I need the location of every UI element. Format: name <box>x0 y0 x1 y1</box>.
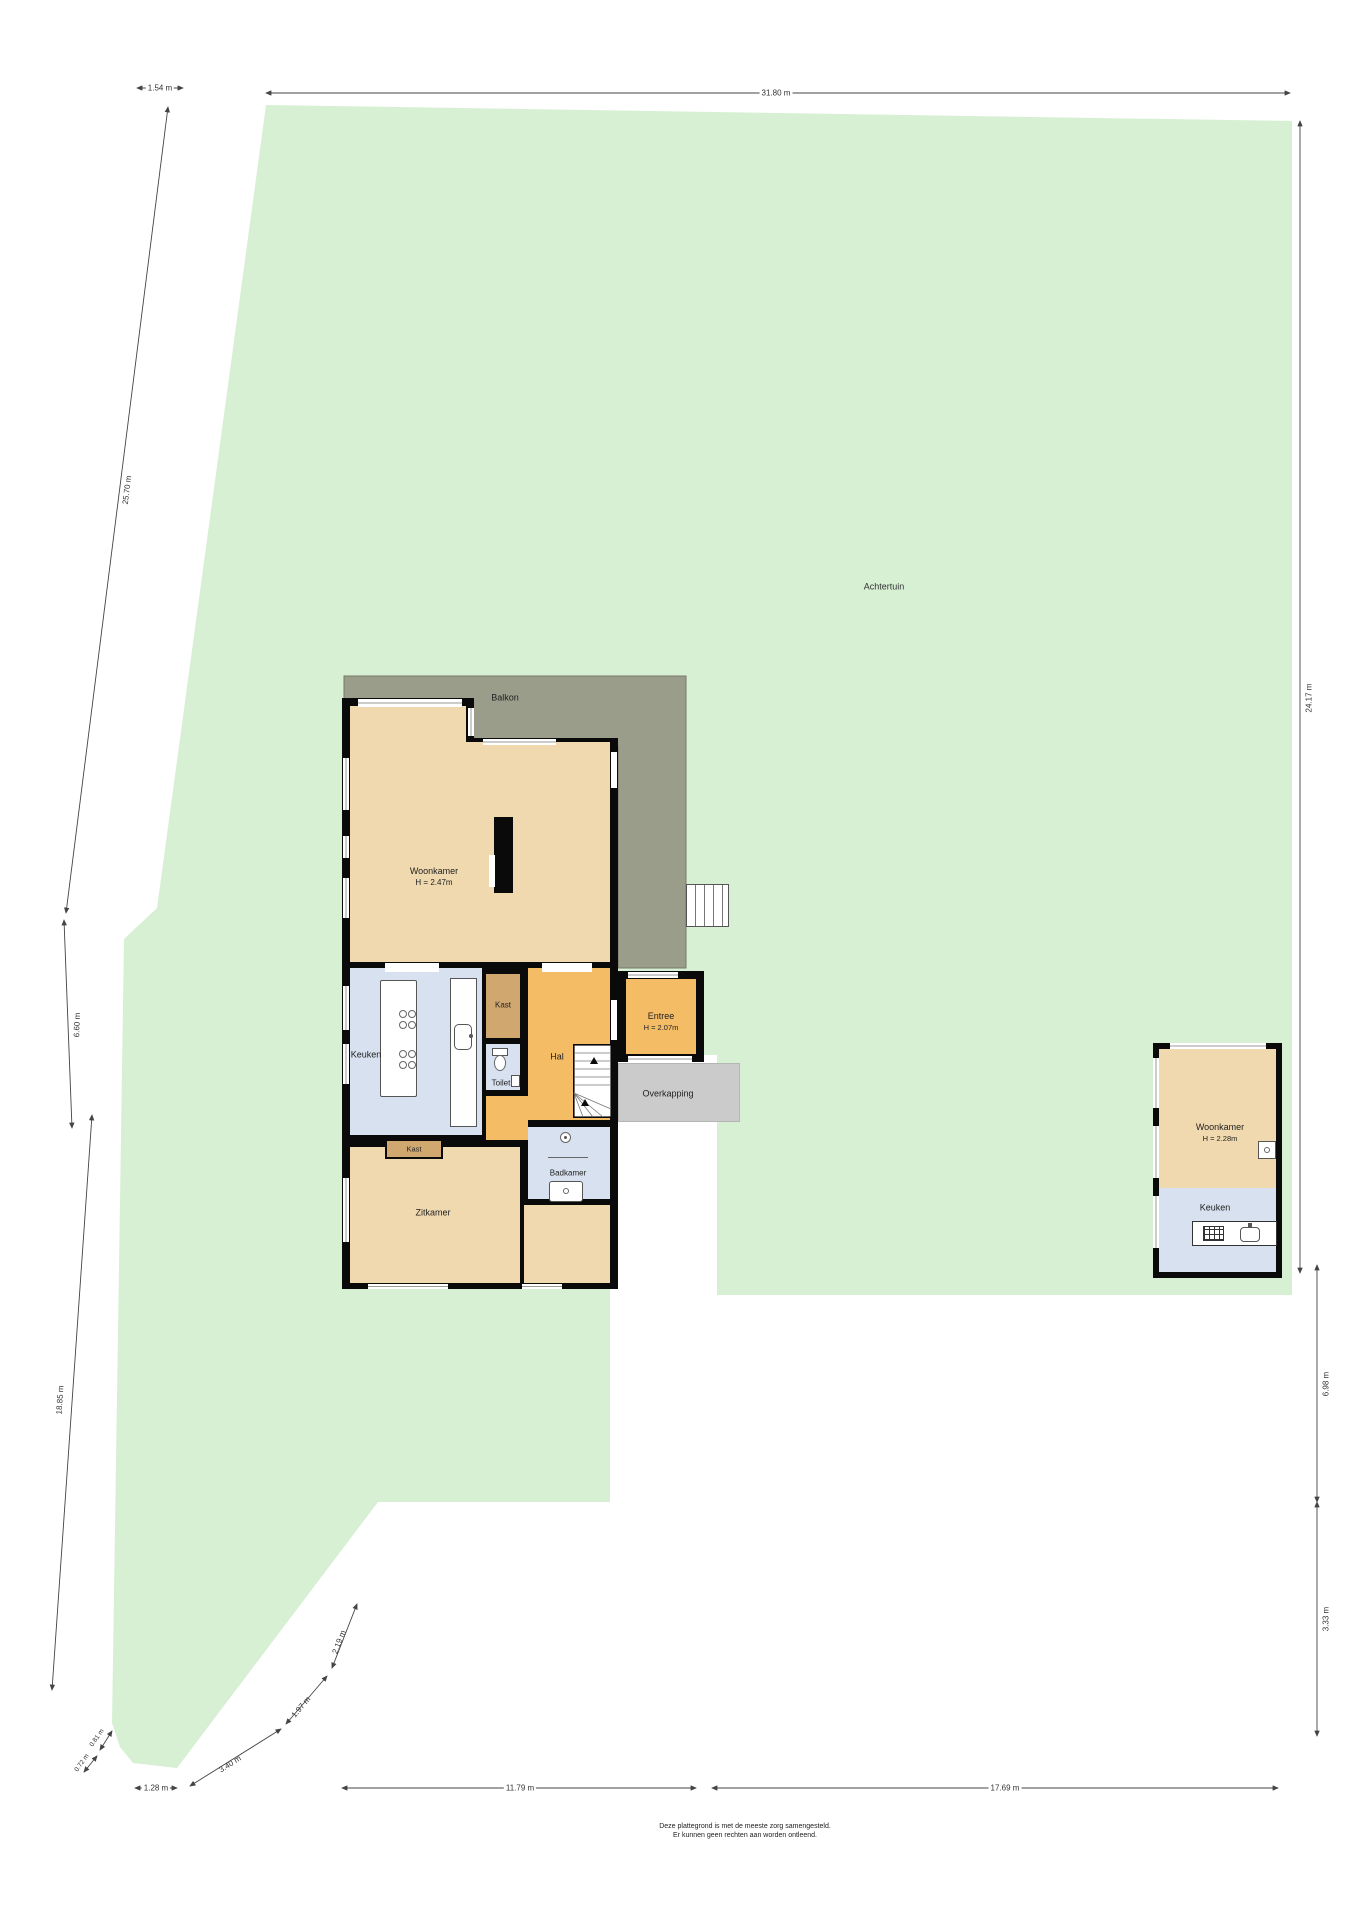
window-entree-bottom <box>628 1056 692 1062</box>
door-woonkamer-hal <box>542 963 592 972</box>
courtyard-area <box>610 1055 717 1502</box>
window-left-6 <box>343 1178 349 1242</box>
entree-height: H = 2.07m <box>644 1022 679 1033</box>
dim-right-lower: 3.33 m <box>1322 1605 1331 1633</box>
disclaimer-line-1: Deze plattegrond is met de meeste zorg s… <box>659 1822 831 1831</box>
bathtub-drain <box>563 1188 569 1194</box>
door-woonkamer-keuken <box>385 963 439 972</box>
window-left-4 <box>343 986 349 1030</box>
window-bottom-1 <box>368 1284 448 1289</box>
window-entree-top <box>628 972 678 978</box>
keuken-label: Keuken <box>351 1050 382 1061</box>
dim-bottom-left: 11.79 m <box>504 1784 536 1793</box>
entree-label: Entree H = 2.07m <box>644 1011 679 1033</box>
garden-lot-polygon <box>112 105 1292 1768</box>
badkamer-label: Badkamer <box>550 1168 586 1179</box>
room-woonkamer-upper <box>350 706 466 746</box>
hal-label: Hal <box>550 1052 564 1063</box>
window-guest-left-1 <box>1153 1058 1159 1108</box>
kast-upper-label: Kast <box>495 1000 511 1011</box>
door-hal-entree <box>611 1000 617 1040</box>
window-left-2 <box>343 836 349 858</box>
toilet-sink <box>511 1075 520 1087</box>
dim-corner-c: 1.28 m <box>142 1784 170 1793</box>
kitchen-counter <box>450 978 477 1127</box>
staircase <box>573 1044 612 1118</box>
room-hal-passage <box>486 1096 528 1140</box>
guest-woonkamer-label: Woonkamer H = 2.28m <box>1196 1122 1244 1144</box>
kitchen-tap <box>469 1034 473 1038</box>
guest-woonkamer-name: Woonkamer <box>1196 1122 1244 1133</box>
zitkamer-label: Zitkamer <box>415 1208 450 1219</box>
dim-right-upper: 24.17 m <box>1305 682 1314 715</box>
hob-burner-6 <box>408 1050 416 1058</box>
room-guest-woonkamer <box>1159 1049 1276 1188</box>
kast-lower-label: Kast <box>406 1144 421 1155</box>
site-plan-base <box>0 0 1358 1920</box>
dim-left-mid: 6.60 m <box>72 1011 82 1040</box>
window-woonkamer-step <box>468 708 474 736</box>
window-left-1 <box>343 758 349 810</box>
window-woonkamer-top <box>358 699 462 707</box>
guest-woonkamer-height: H = 2.28m <box>1196 1133 1244 1144</box>
kitchen-island <box>380 980 417 1097</box>
disclaimer: Deze plattegrond is met de meeste zorg s… <box>659 1822 831 1840</box>
garden-label: Achtertuin <box>864 582 905 593</box>
window-left-3 <box>343 878 349 918</box>
hob-burner-3 <box>399 1021 407 1029</box>
window-woonkamer-balcony <box>483 739 556 745</box>
shower-head-dot <box>564 1136 567 1139</box>
room-woonkamer <box>350 742 610 962</box>
toilet-label: Toilet <box>492 1078 511 1089</box>
boiler-dial <box>1264 1147 1270 1153</box>
guest-hob <box>1203 1226 1224 1241</box>
woonkamer-height: H = 2.47m <box>410 877 458 888</box>
balkon-label: Balkon <box>491 693 519 704</box>
window-guest-left-3 <box>1153 1196 1159 1248</box>
hob-burner-4 <box>408 1021 416 1029</box>
woonkamer-name: Woonkamer <box>410 866 458 877</box>
hob-burner-8 <box>408 1061 416 1069</box>
hob-burner-5 <box>399 1050 407 1058</box>
woonkamer-label: Woonkamer H = 2.47m <box>410 866 458 888</box>
guest-sink <box>1240 1227 1260 1242</box>
dim-right-mid: 6.98 m <box>1322 1370 1331 1398</box>
guest-tap <box>1248 1223 1252 1228</box>
hob-burner-7 <box>399 1061 407 1069</box>
dim-top-offset: 1.54 m <box>146 84 174 93</box>
fireplace <box>494 817 513 893</box>
floorplan-canvas: Achtertuin Balkon Woonkamer H = 2.47m Ke… <box>0 0 1358 1920</box>
entree-name: Entree <box>644 1011 679 1022</box>
overkapping-label: Overkapping <box>642 1089 693 1100</box>
window-guest-top <box>1170 1043 1266 1049</box>
dim-bottom-right: 17.69 m <box>989 1784 1022 1793</box>
dim-top-width: 31.80 m <box>760 89 793 98</box>
guest-keuken-label: Keuken <box>1200 1203 1231 1214</box>
hob-burner-1 <box>399 1010 407 1018</box>
window-left-5 <box>343 1044 349 1084</box>
exterior-stairs <box>686 884 729 927</box>
window-bottom-2 <box>522 1284 562 1289</box>
shower-divider <box>548 1157 588 1158</box>
fireplace-slot <box>489 855 495 887</box>
hob-burner-2 <box>408 1010 416 1018</box>
disclaimer-line-2: Er kunnen geen rechten aan worden ontlee… <box>659 1831 831 1840</box>
door-balcony <box>611 752 617 788</box>
window-guest-left-2 <box>1153 1126 1159 1178</box>
room-zitkamer-ext <box>524 1205 610 1283</box>
toilet-bowl <box>494 1055 506 1071</box>
